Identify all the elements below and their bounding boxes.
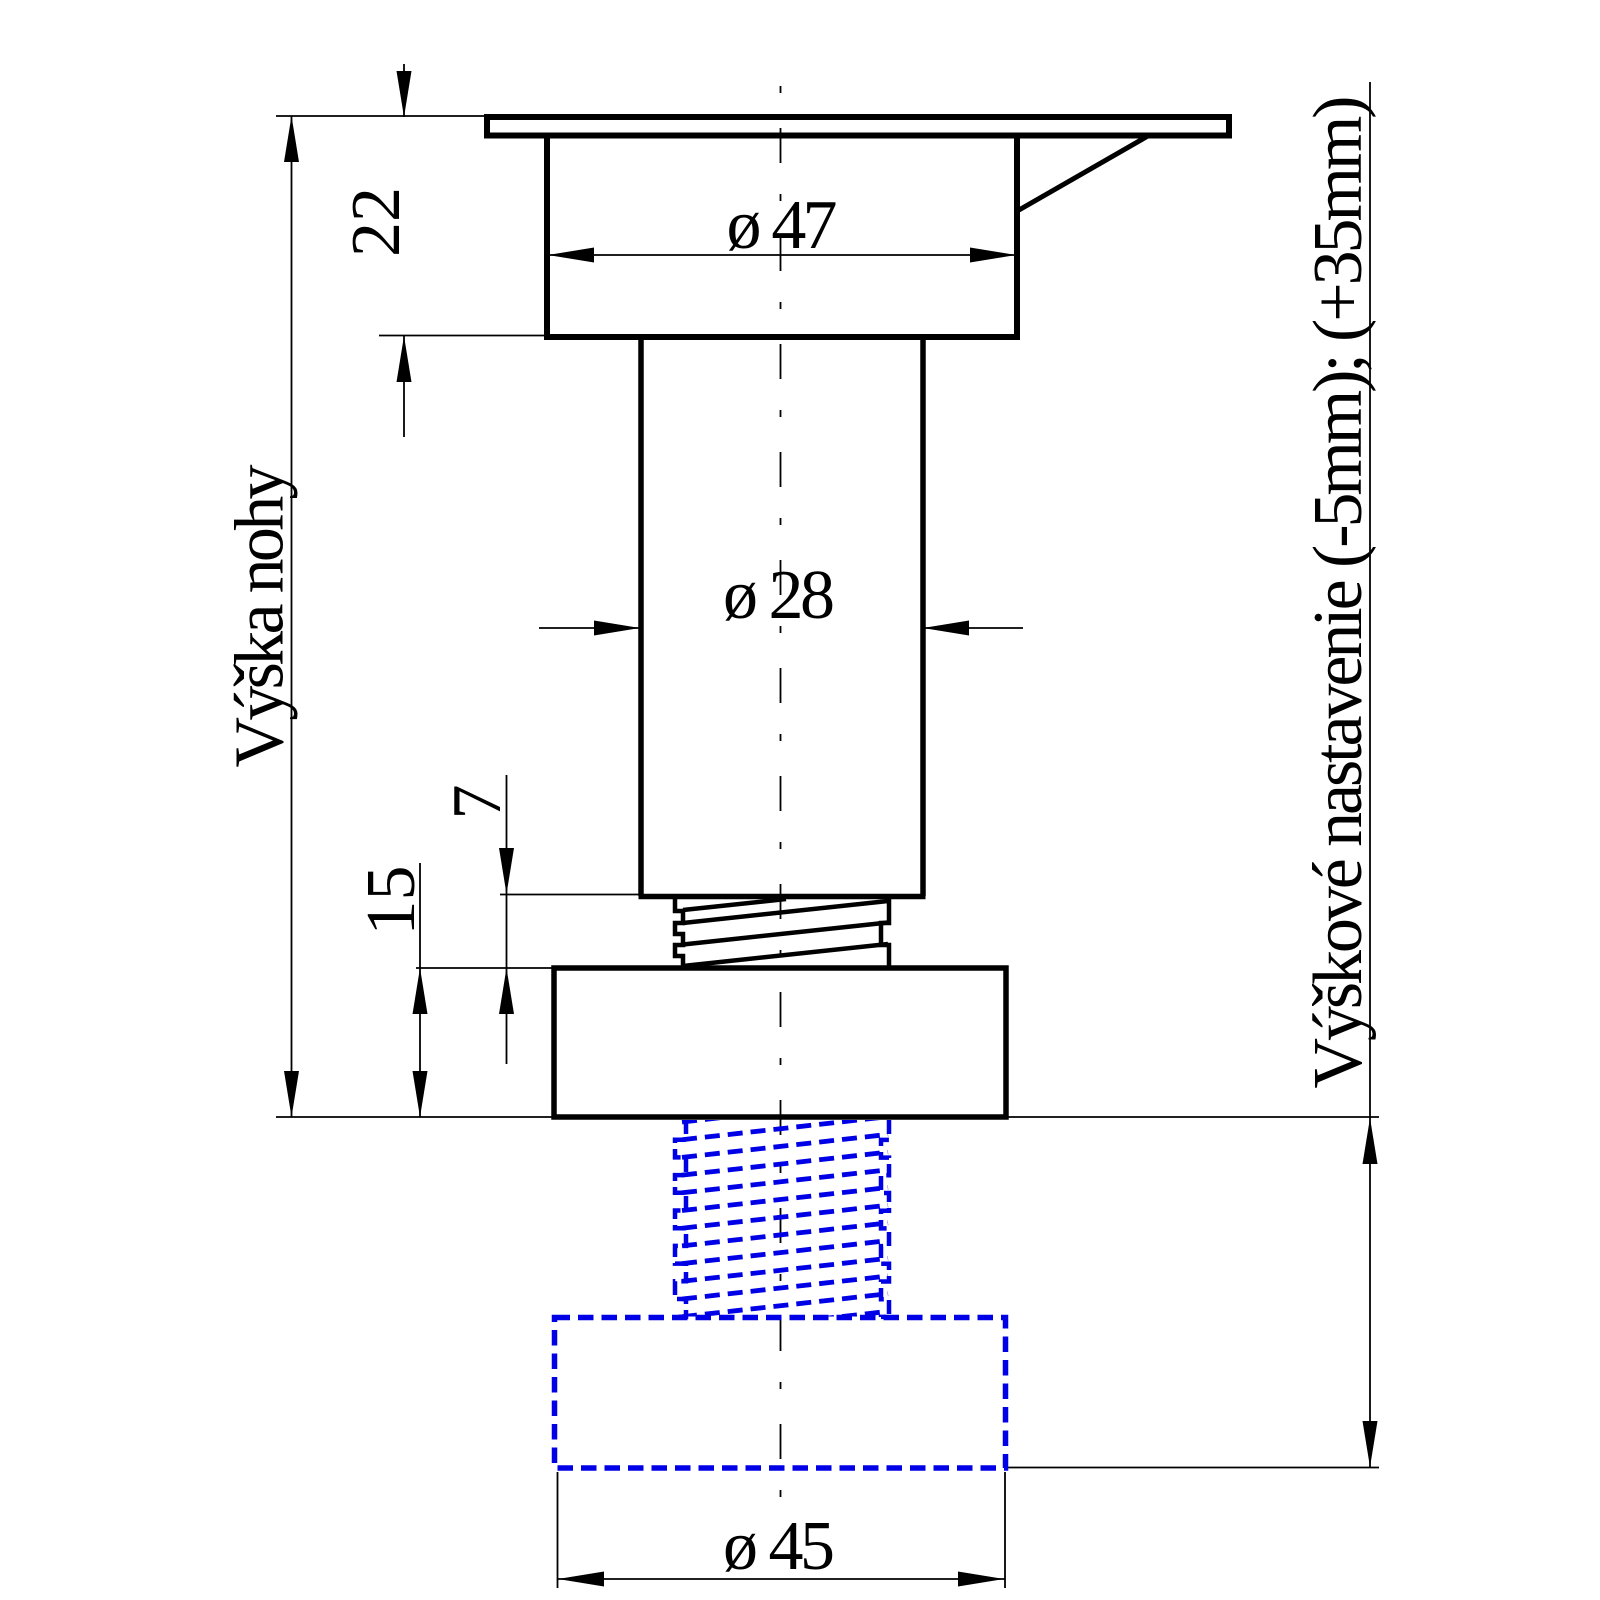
svg-text:ø 47: ø 47 — [727, 187, 838, 264]
svg-text:ø 45: ø 45 — [723, 1508, 835, 1585]
svg-text:Výškové nastavenie (-5mm); (+3: Výškové nastavenie (-5mm); (+35mm) — [1300, 96, 1377, 1089]
svg-text:7: 7 — [439, 785, 516, 820]
svg-text:ø 28: ø 28 — [723, 557, 835, 634]
svg-text:Výška nohy: Výška nohy — [222, 465, 299, 768]
svg-text:15: 15 — [353, 866, 430, 936]
svg-text:22: 22 — [338, 187, 415, 257]
